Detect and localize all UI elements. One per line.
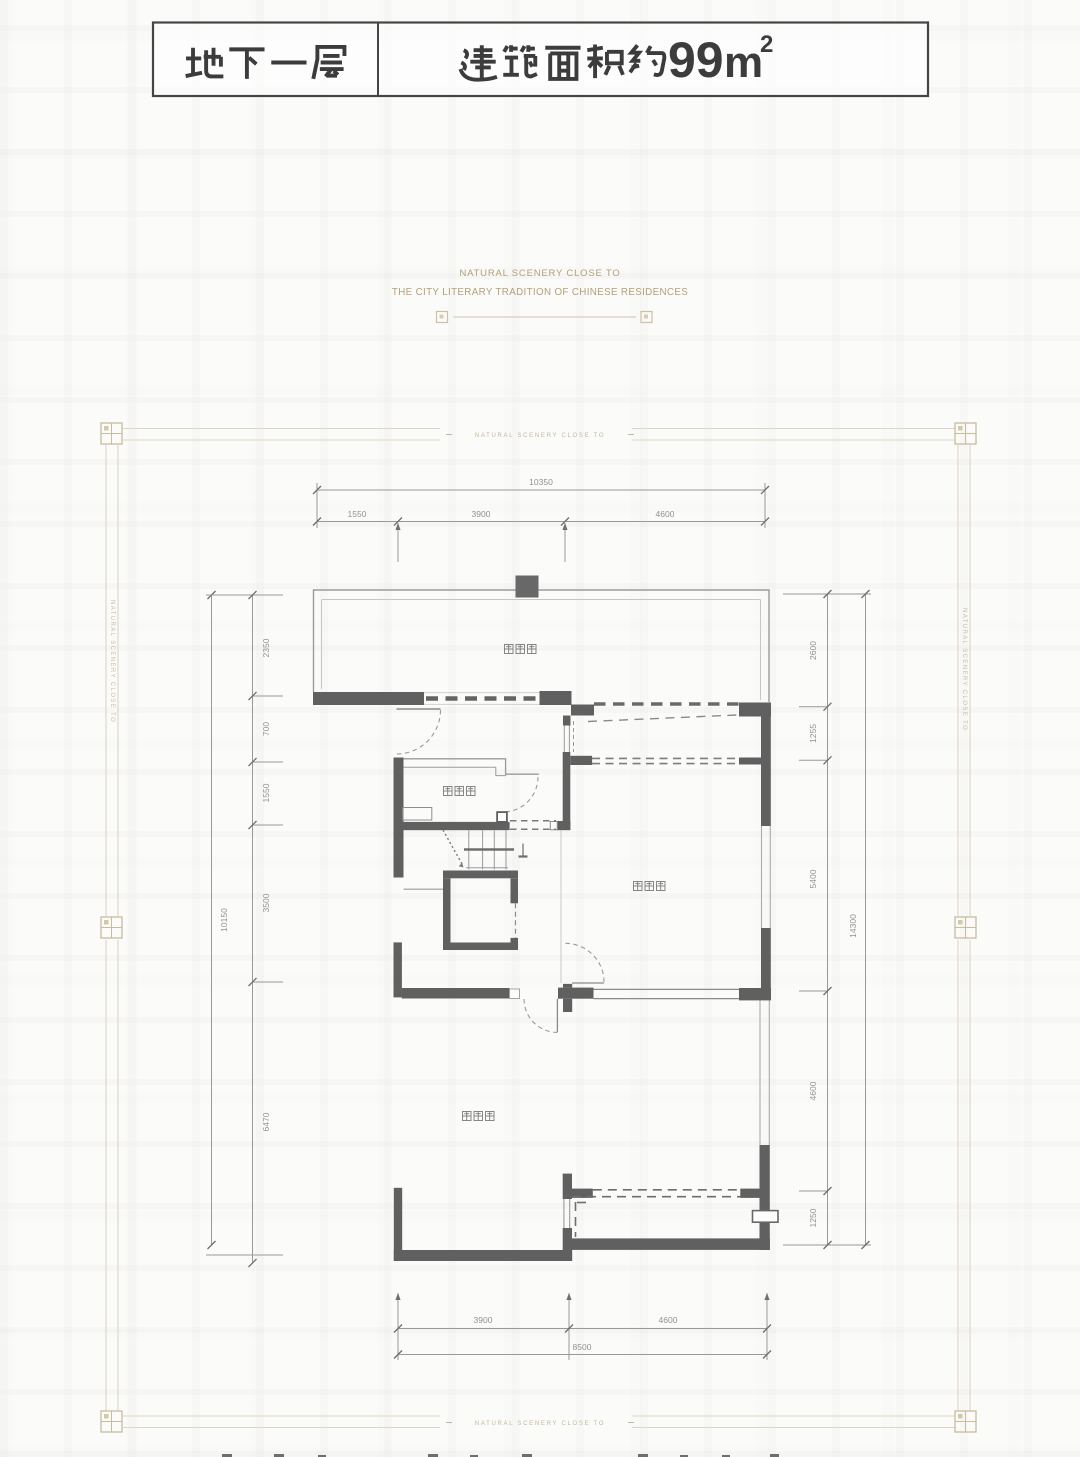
svg-text:700: 700 [261, 722, 271, 736]
svg-text:2350: 2350 [261, 638, 271, 657]
svg-text:NATURAL SCENERY CLOSE TO: NATURAL SCENERY CLOSE TO [109, 600, 115, 723]
svg-text:10350: 10350 [529, 477, 553, 487]
svg-text:NATURAL SCENERY CLOSE TO: NATURAL SCENERY CLOSE TO [459, 268, 620, 279]
svg-text:m: m [724, 38, 763, 87]
svg-text:1250: 1250 [808, 1208, 818, 1227]
svg-text:3900: 3900 [472, 509, 491, 519]
svg-text:8500: 8500 [573, 1342, 592, 1352]
svg-text:NATURAL SCENERY CLOSE TO: NATURAL SCENERY CLOSE TO [475, 433, 605, 439]
svg-text:99: 99 [668, 32, 724, 88]
svg-text:1550: 1550 [348, 509, 367, 519]
svg-text:1255: 1255 [808, 724, 818, 743]
svg-text:2: 2 [760, 31, 773, 58]
svg-text:14300: 14300 [848, 914, 858, 938]
svg-text:3500: 3500 [261, 893, 271, 912]
svg-text:10150: 10150 [219, 908, 229, 932]
svg-text:4600: 4600 [656, 509, 675, 519]
svg-text:2600: 2600 [808, 641, 818, 660]
svg-text:4600: 4600 [659, 1315, 678, 1325]
svg-text:THE CITY LITERARY TRADITION OF: THE CITY LITERARY TRADITION OF CHINESE R… [392, 287, 688, 298]
svg-text:1550: 1550 [261, 783, 271, 802]
svg-text:4600: 4600 [808, 1081, 818, 1100]
svg-text:3900: 3900 [474, 1315, 493, 1325]
svg-text:NATURAL SCENERY CLOSE TO: NATURAL SCENERY CLOSE TO [961, 608, 967, 731]
svg-text:5400: 5400 [808, 869, 818, 888]
svg-text:6470: 6470 [261, 1112, 271, 1131]
svg-text:NATURAL SCENERY CLOSE TO: NATURAL SCENERY CLOSE TO [475, 1421, 605, 1427]
